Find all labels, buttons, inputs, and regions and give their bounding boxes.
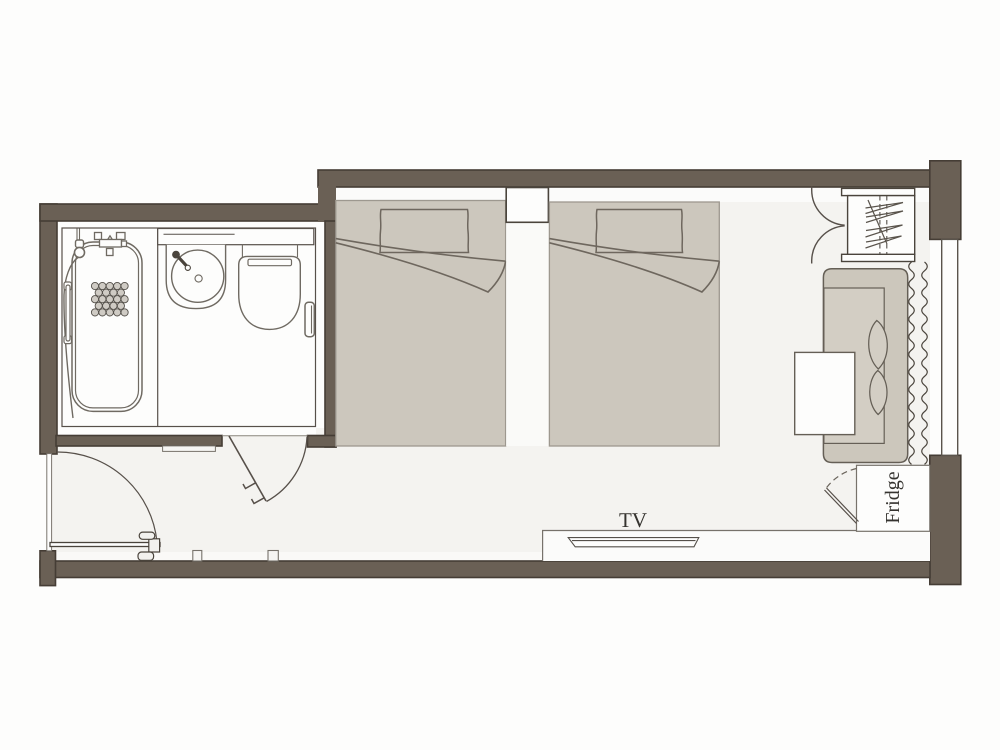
svg-text:Fridge: Fridge bbox=[882, 471, 904, 523]
svg-text:TV: TV bbox=[619, 508, 647, 532]
